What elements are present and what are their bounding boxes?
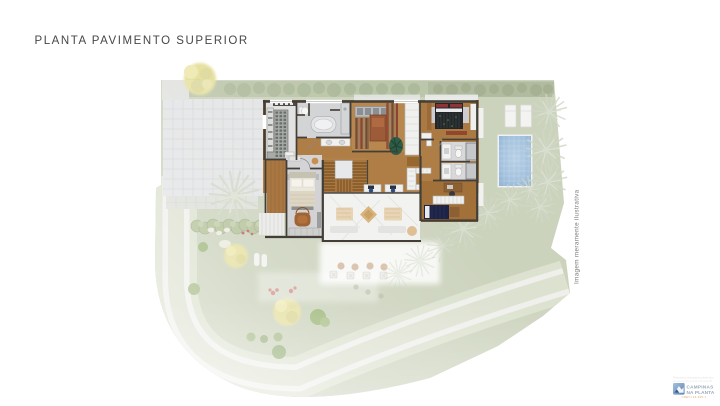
- svg-text:Imagem meramente ilustrativa: Imagem meramente ilustrativa: [574, 189, 581, 284]
- svg-text:PLANTA PAVIMENTO SUPERIOR: PLANTA PAVIMENTO SUPERIOR: [35, 35, 249, 47]
- svg-text:CAMPINAS: CAMPINAS: [687, 385, 714, 390]
- svg-text:CRECI 24.345-J: CRECI 24.345-J: [682, 395, 707, 399]
- svg-text:do pavimento superior da casa: do pavimento superior da casa 03: [673, 379, 713, 383]
